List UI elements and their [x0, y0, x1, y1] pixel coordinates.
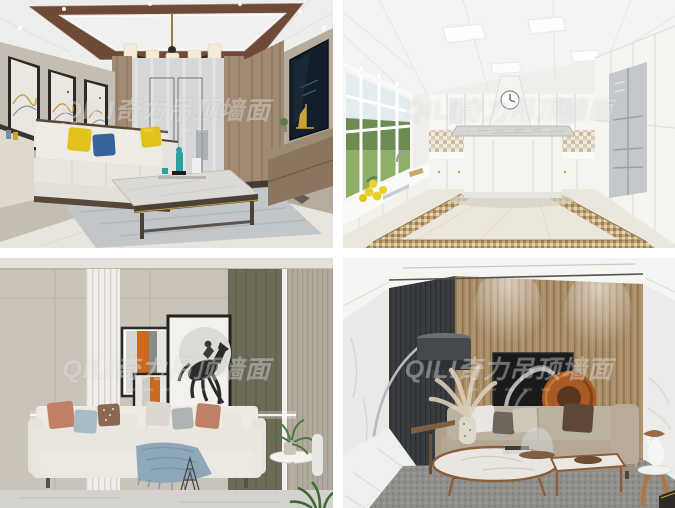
kitchen-island: [450, 126, 575, 208]
gallery-photo-wood-slat-room[interactable]: QILI奇力吊顶墙面: [343, 258, 675, 508]
gallery-photo-horse-art-room[interactable]: QILI奇力吊顶墙面: [0, 258, 333, 508]
gallery-photo-living-room-coffered[interactable]: QILI奇力吊顶墙面: [0, 0, 333, 248]
gallery-photo-white-kitchen[interactable]: QILI奇力吊顶墙面: [343, 0, 675, 248]
horse-art-room-illustration: [0, 258, 333, 508]
cream-sofa: [28, 401, 266, 490]
side-cabinet: [0, 124, 34, 208]
wood-slat-room-illustration: [343, 258, 675, 508]
white-kitchen-illustration: [343, 0, 675, 248]
living-room-coffered-illustration: [0, 0, 333, 248]
interior-gallery-grid: QILI奇力吊顶墙面: [0, 0, 675, 508]
